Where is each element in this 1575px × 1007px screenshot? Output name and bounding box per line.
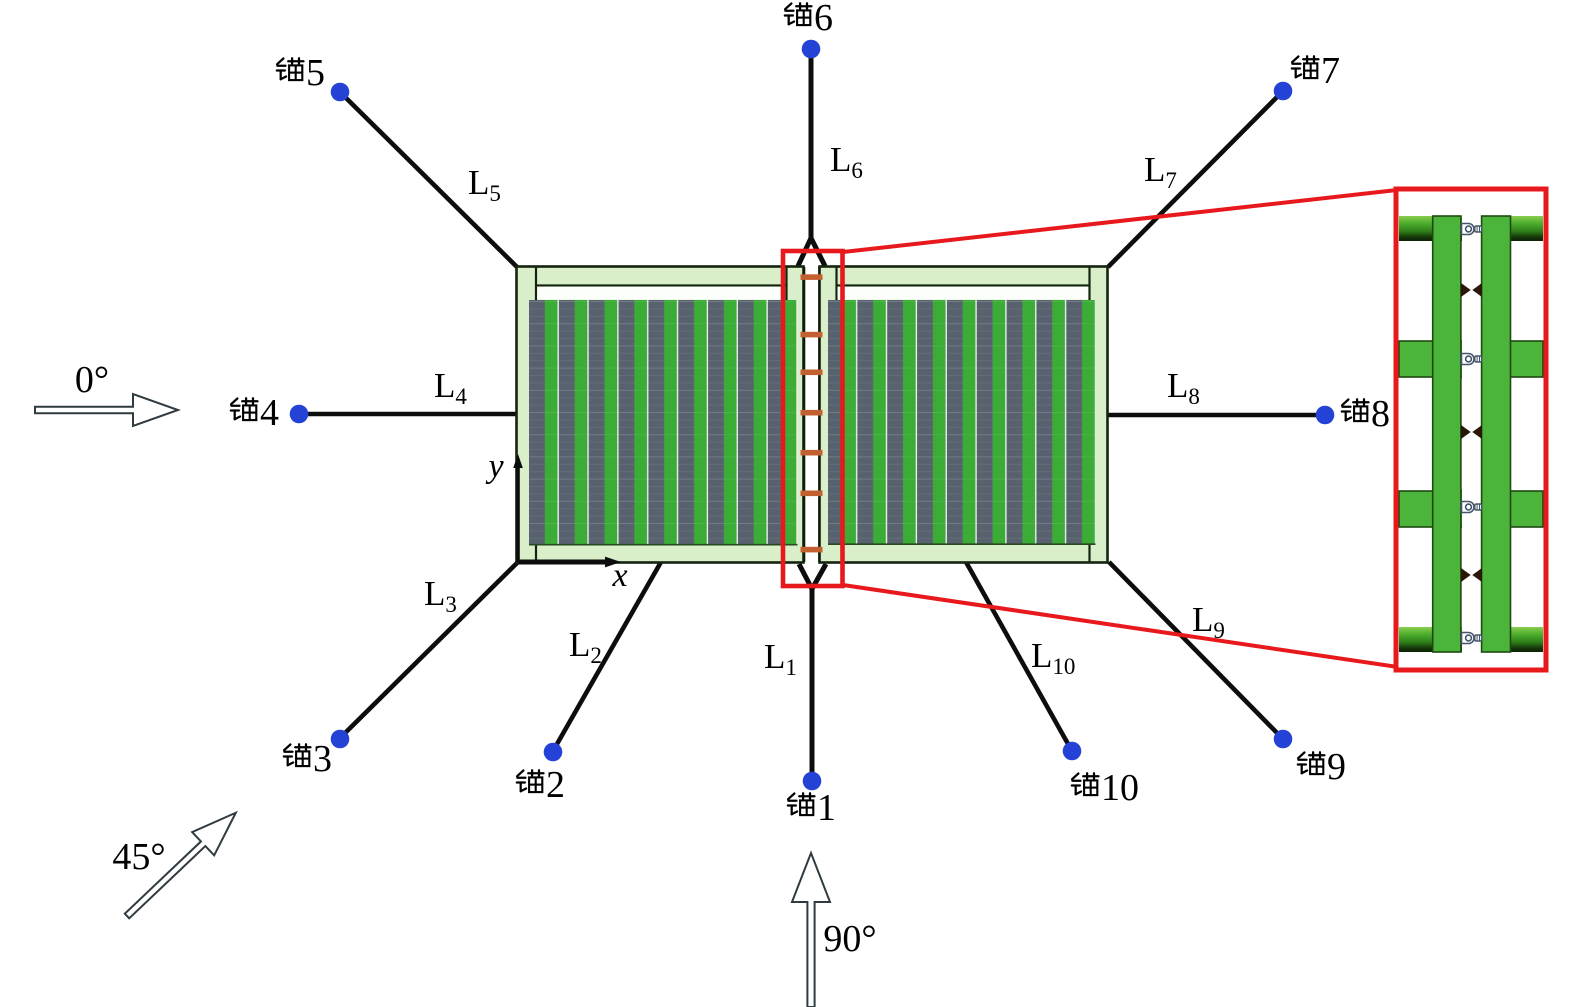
svg-text:7: 7 bbox=[1321, 50, 1340, 92]
svg-text:x: x bbox=[611, 557, 627, 594]
svg-text:9: 9 bbox=[1327, 746, 1346, 788]
svg-text:3: 3 bbox=[313, 738, 332, 780]
svg-text:1: 1 bbox=[817, 787, 836, 829]
svg-text:8: 8 bbox=[1371, 393, 1390, 435]
svg-text:10: 10 bbox=[1101, 767, 1139, 809]
svg-text:6: 6 bbox=[814, 0, 833, 39]
svg-text:5: 5 bbox=[306, 52, 325, 94]
svg-text:45°: 45° bbox=[112, 836, 165, 878]
svg-text:4: 4 bbox=[260, 392, 279, 434]
svg-text:90°: 90° bbox=[823, 918, 876, 960]
svg-text:y: y bbox=[485, 448, 504, 485]
svg-text:2: 2 bbox=[546, 764, 565, 806]
svg-text:0°: 0° bbox=[75, 359, 109, 401]
